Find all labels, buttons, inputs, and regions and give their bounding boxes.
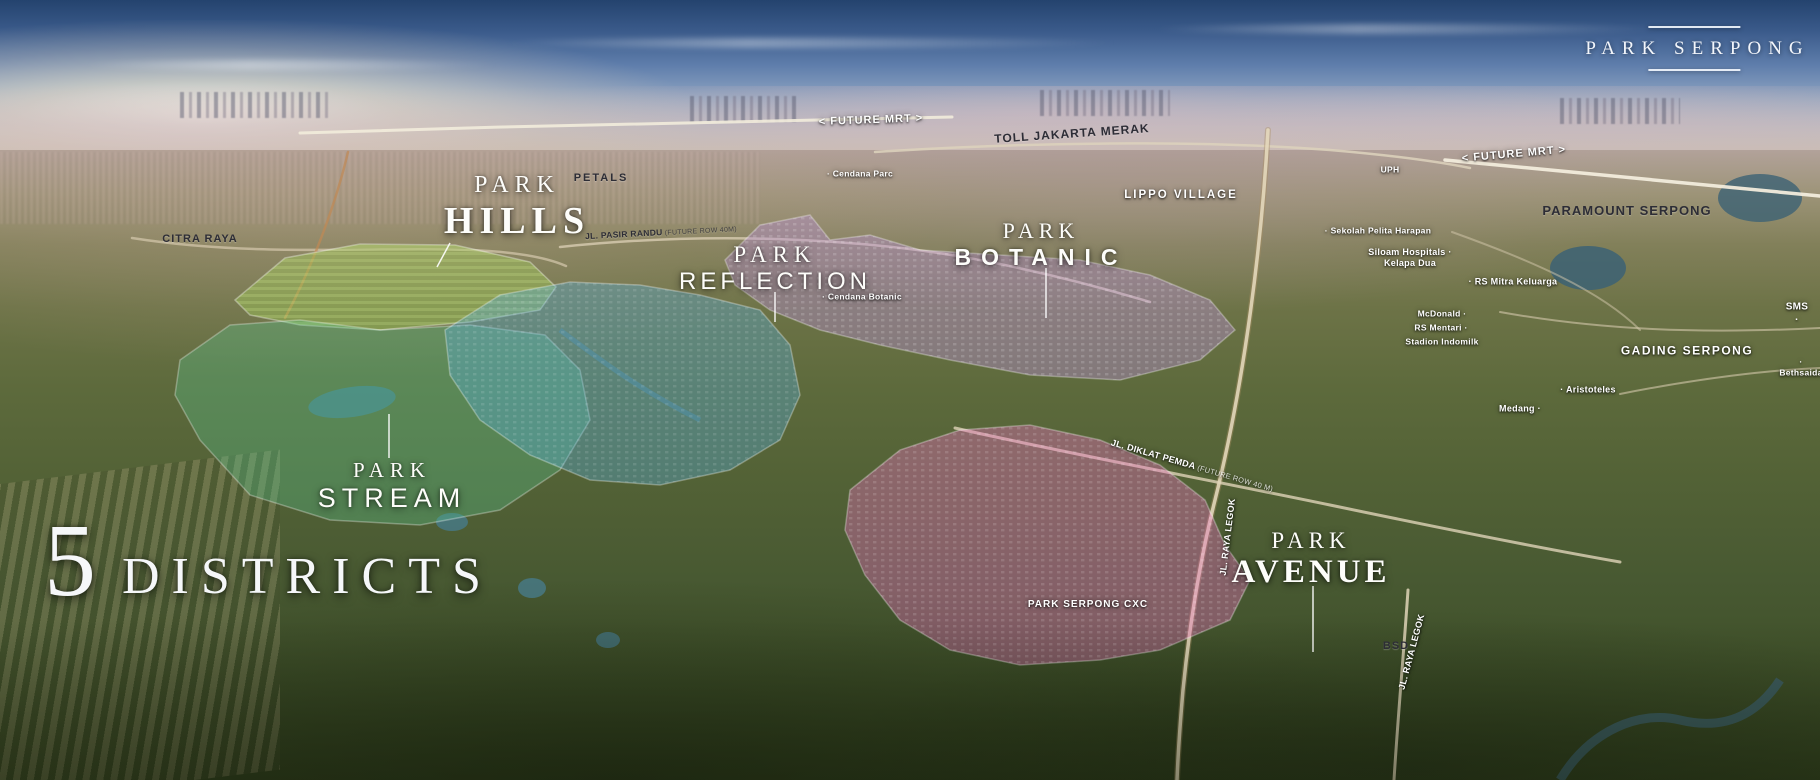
siloam-hospitals-kelapa-dua-label: Siloam Hospitals · Kelapa Dua — [1368, 247, 1451, 270]
gading-serpong-text: GADING SERPONG — [1621, 344, 1753, 358]
brand-name: PARK SERPONG — [1578, 28, 1809, 69]
reflection-name: REFLECTION — [679, 268, 871, 296]
botanic-name: BOTANIC — [954, 244, 1127, 271]
uph-text: UPH — [1381, 165, 1400, 175]
headline-word: DISTRICTS — [122, 551, 493, 603]
medang-text: Medang · — [1499, 403, 1541, 413]
district-label-reflection[interactable]: PARK REFLECTION — [679, 242, 871, 296]
masterplan-scene: < FUTURE MRT >TOLL JAKARTA MERAK· Cendan… — [0, 0, 1820, 780]
future-mrt-left-label: < FUTURE MRT > — [819, 112, 924, 129]
district-label-hills[interactable]: PARK HILLS — [444, 172, 590, 243]
aristoteles-text: · Aristoteles — [1560, 384, 1616, 394]
road-jl-diklat-pemda-text: JL. DIKLAT PEMDA — [1110, 437, 1197, 471]
lippo-village-text: LIPPO VILLAGE — [1124, 189, 1238, 201]
stream-name: STREAM — [318, 483, 467, 514]
medang-label: Medang · — [1499, 403, 1541, 414]
landmark-layer: < FUTURE MRT >TOLL JAKARTA MERAK· Cendan… — [0, 0, 1820, 780]
future-mrt-left-text: < FUTURE MRT > — [819, 112, 924, 128]
bsd-label: BSD — [1383, 640, 1409, 654]
stadion-indomilk-text: Stadion Indomilk — [1405, 337, 1478, 347]
cendana-parc-text: · Cendana Parc — [827, 169, 893, 179]
rs-mentari-text: RS Mentari · — [1414, 323, 1467, 333]
uph-label: UPH — [1381, 165, 1400, 176]
brand-rule-bottom — [1648, 69, 1740, 71]
district-label-stream[interactable]: PARK STREAM — [318, 458, 467, 514]
paramount-serpong-label: PARAMOUNT SERPONG — [1542, 203, 1711, 219]
rs-mitra-keluarga-text: · RS Mitra Keluarga — [1469, 276, 1558, 286]
lippo-village-label: LIPPO VILLAGE — [1124, 188, 1238, 202]
avenue-name: AVENUE — [1231, 554, 1390, 591]
citra-raya-text: CITRA RAYA — [162, 233, 237, 245]
stream-kicker: PARK — [318, 458, 467, 483]
district-label-botanic[interactable]: PARK BOTANIC — [954, 218, 1127, 271]
park-serpong-cxc-label: PARK SERPONG CXC — [1028, 599, 1148, 612]
future-mrt-right-label: < FUTURE MRT > — [1461, 144, 1566, 167]
hills-kicker: PARK — [444, 172, 590, 199]
botanic-kicker: PARK — [954, 218, 1127, 244]
toll-jakarta-merak-text: TOLL JAKARTA MERAK — [994, 121, 1150, 146]
park-serpong-cxc-text: PARK SERPONG CXC — [1028, 599, 1148, 610]
sekolah-pelita-harapan-label: · Sekolah Pelita Harapan — [1325, 226, 1431, 237]
mcdonald-label: McDonald · — [1418, 309, 1467, 320]
toll-jakarta-merak-label: TOLL JAKARTA MERAK — [994, 121, 1150, 147]
district-label-avenue[interactable]: PARK AVENUE — [1231, 528, 1390, 591]
road-jl-pasir-randu-text: JL. PASIR RANDU — [585, 227, 663, 241]
headline: 5 DISTRICTS — [44, 512, 493, 611]
rs-mitra-keluarga-label: · RS Mitra Keluarga — [1469, 276, 1558, 287]
hills-name: HILLS — [444, 199, 590, 243]
sekolah-pelita-harapan-text: · Sekolah Pelita Harapan — [1325, 226, 1431, 236]
road-jl-pasir-randu-subtext: (FUTURE ROW 40M) — [662, 226, 737, 237]
headline-number: 5 — [44, 512, 96, 611]
reflection-kicker: PARK — [679, 242, 871, 268]
bethsaida-text: · Bethsaida — [1779, 356, 1820, 377]
rs-mentari-label: RS Mentari · — [1414, 323, 1467, 334]
avenue-kicker: PARK — [1231, 528, 1390, 554]
road-jl-pasir-randu-label: JL. PASIR RANDU (FUTURE ROW 40M) — [585, 223, 737, 243]
aristoteles-label: · Aristoteles — [1560, 384, 1616, 395]
siloam-hospitals-kelapa-dua-text: Siloam Hospitals · Kelapa Dua — [1368, 247, 1451, 268]
sms-label: SMS · — [1786, 302, 1809, 327]
bsd-text: BSD — [1383, 640, 1409, 652]
sms-text: SMS · — [1786, 302, 1809, 326]
bethsaida-label: · Bethsaida — [1779, 356, 1820, 377]
stadion-indomilk-label: Stadion Indomilk — [1405, 337, 1478, 348]
mcdonald-text: McDonald · — [1418, 309, 1467, 319]
road-jl-diklat-pemda-subtext: (FUTURE ROW 40 M) — [1194, 462, 1274, 493]
future-mrt-right-text: < FUTURE MRT > — [1461, 144, 1566, 165]
gading-serpong-label: GADING SERPONG — [1621, 344, 1753, 359]
citra-raya-label: CITRA RAYA — [162, 233, 237, 247]
brand-logo[interactable]: PARK SERPONG — [1578, 26, 1809, 71]
paramount-serpong-text: PARAMOUNT SERPONG — [1542, 203, 1711, 218]
cendana-parc-label: · Cendana Parc — [827, 169, 893, 180]
road-jl-diklat-pemda-label: JL. DIKLAT PEMDA (FUTURE ROW 40 M) — [1109, 437, 1274, 494]
